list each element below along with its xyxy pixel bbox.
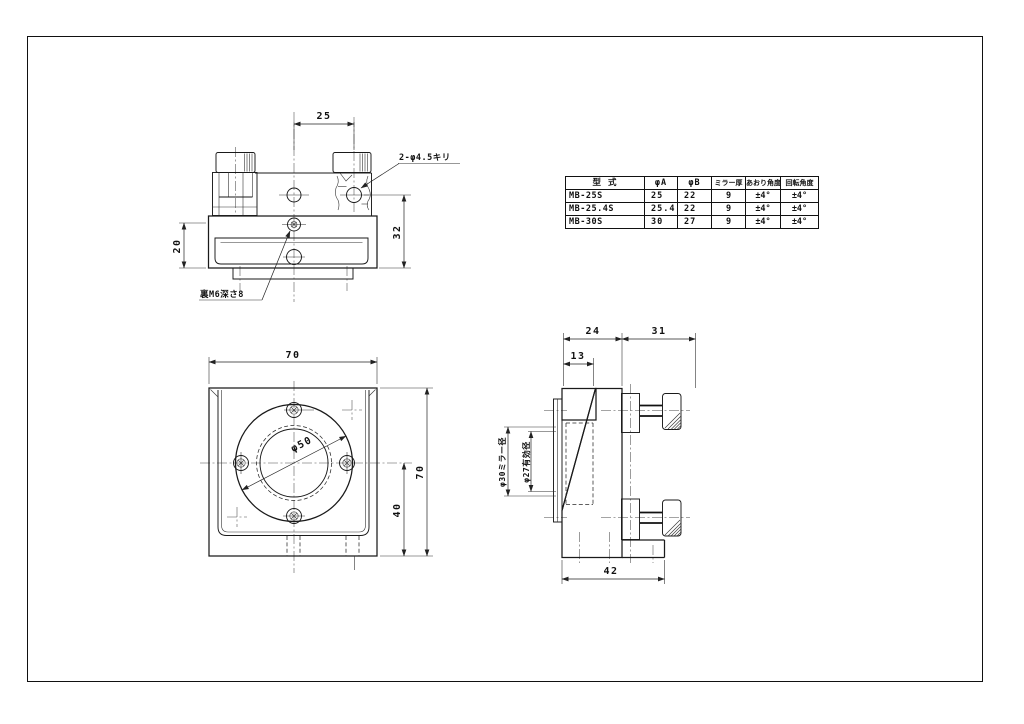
top-dim-32: 32 [392, 224, 403, 239]
spec-header-model: 型 式 [566, 177, 645, 190]
spec-row1-model: MB-25.4S [566, 203, 645, 216]
spec-row0-tilt-angle: ±4° [746, 190, 781, 203]
spec-table: 型 式 φA φB ミラー厚 あおり角度 回転角度 MB-25S 25 22 9… [565, 176, 819, 229]
top-note-drill: 2-φ4.5キリ [399, 153, 451, 163]
top-view: 25 20 32 2-φ4.5キリ 裏M6深さ8 [172, 111, 460, 302]
spec-row2-phiA: 30 [645, 216, 678, 228]
spec-header-phiB: φB [678, 177, 712, 190]
spec-header-rotation-angle: 回転角度 [781, 177, 818, 190]
drawing-sheet: 25 20 32 2-φ4.5キリ 裏M6深さ8 [0, 0, 1024, 724]
side-view: 24 31 13 42 φ30ミラー径 φ27有効径 [497, 326, 696, 584]
top-dim-20: 20 [172, 238, 183, 253]
spec-row2-phiB: 27 [678, 216, 712, 228]
spec-header-tilt-angle: あおり角度 [746, 177, 781, 190]
side-dim-24: 24 [585, 326, 600, 337]
technical-drawing: 25 20 32 2-φ4.5キリ 裏M6深さ8 [0, 0, 1024, 724]
spec-row2-model: MB-30S [566, 216, 645, 228]
screw-top [284, 403, 314, 418]
front-view: 70 70 40 φ50 [200, 350, 433, 573]
spec-row0-model: MB-25S [566, 190, 645, 203]
spec-row1-tilt-angle: ±4° [746, 203, 781, 216]
side-dim-42: 42 [603, 566, 618, 577]
spec-row2-rotation-angle: ±4° [781, 216, 818, 228]
side-label-effective-dia: φ27有効径 [521, 441, 531, 482]
side-dim-13: 13 [570, 351, 585, 362]
spec-row1-phiB: 22 [678, 203, 712, 216]
spec-row2-tilt-angle: ±4° [746, 216, 781, 228]
spec-header-phiA: φA [645, 177, 678, 190]
spec-row1-phiA: 25.4 [645, 203, 678, 216]
top-note-tap: 裏M6深さ8 [199, 289, 244, 300]
spec-row0-rotation-angle: ±4° [781, 190, 818, 203]
spec-row0-phiB: 22 [678, 190, 712, 203]
spec-row2-mirror-thickness: 9 [712, 216, 746, 228]
spec-header-mirror-thickness: ミラー厚 [712, 177, 746, 190]
front-dim-40: 40 [392, 502, 403, 517]
side-dim-31: 31 [651, 326, 666, 337]
spec-row1-rotation-angle: ±4° [781, 203, 818, 216]
spec-row0-mirror-thickness: 9 [712, 190, 746, 203]
front-dim-width: 70 [285, 350, 300, 361]
front-dim-phi50: φ50 [289, 435, 314, 455]
side-label-mirror-dia: φ30ミラー径 [497, 437, 507, 487]
corner-hole-marks [227, 400, 362, 527]
spec-row1-mirror-thickness: 9 [712, 203, 746, 216]
spec-row0-phiA: 25 [645, 190, 678, 203]
top-dim-25: 25 [316, 111, 331, 122]
front-dim-height: 70 [415, 464, 426, 479]
